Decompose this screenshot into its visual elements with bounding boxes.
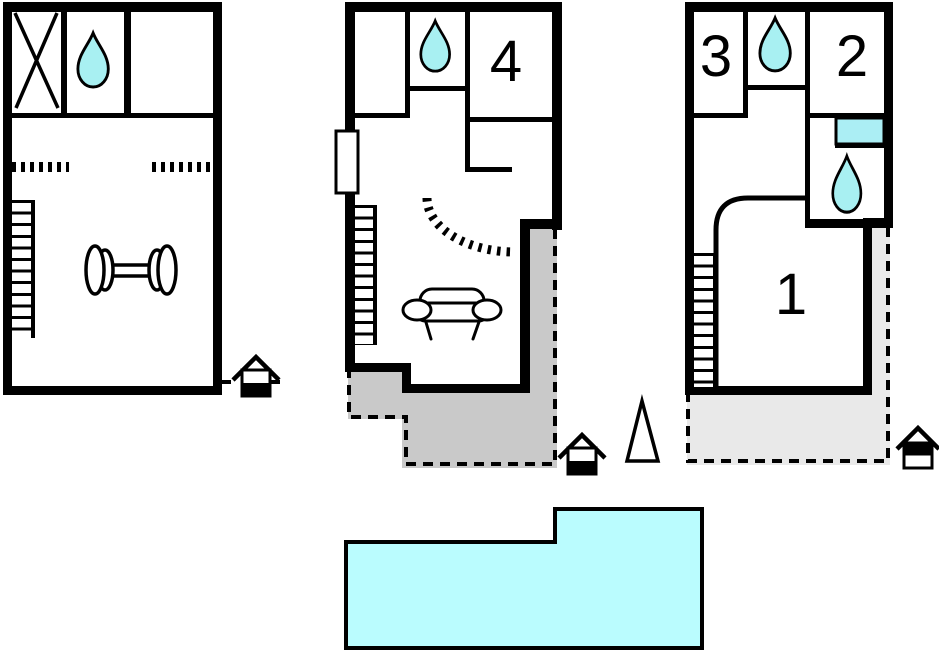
water-drop-icon (760, 18, 790, 71)
water-drop-icon (833, 156, 861, 212)
dumbbell-icon (86, 246, 176, 294)
room-number-label: 4 (490, 33, 522, 91)
bathtub-fixture (836, 118, 884, 144)
x-marked-area-icon (15, 13, 58, 108)
entrance-house-icon (221, 357, 280, 396)
room-number-4: 4 (481, 33, 531, 91)
overhead-opening-dotted-curve (427, 198, 515, 252)
window-icon (336, 131, 358, 193)
room-number-label: 3 (700, 28, 732, 86)
room-number-label: 1 (775, 266, 807, 324)
tree-icon (627, 401, 658, 461)
room-number-3: 3 (691, 29, 741, 85)
water-drop-icon (421, 21, 450, 71)
room-number-label: 2 (836, 28, 868, 86)
entrance-house-icon (897, 428, 939, 468)
water-drop-icon (78, 33, 108, 87)
room-number-2: 2 (827, 29, 877, 85)
entrance-house-icon (559, 435, 605, 474)
sofa-icon (403, 289, 501, 339)
room-number-1: 1 (766, 267, 816, 323)
terrace-dashed-border (349, 229, 555, 464)
floorplan-canvas: 4 3 2 1 (0, 0, 939, 652)
